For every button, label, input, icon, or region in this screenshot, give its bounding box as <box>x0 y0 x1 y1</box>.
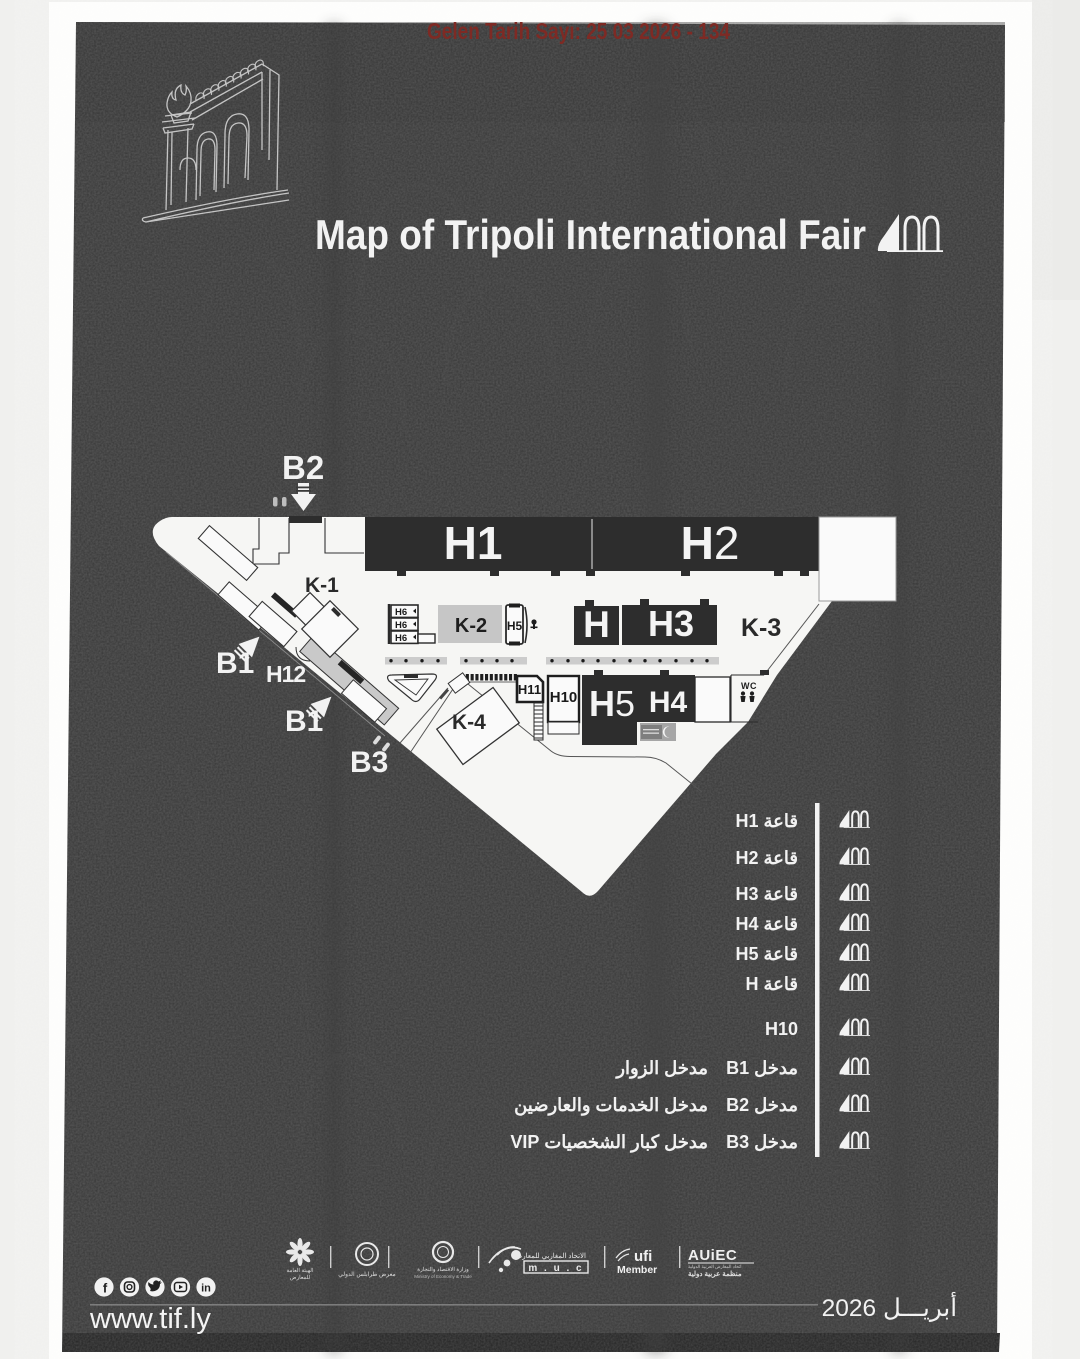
svg-text:ufi: ufi <box>634 1248 652 1265</box>
svg-text:K-3: K-3 <box>741 614 781 642</box>
svg-text:H10: H10 <box>765 1019 798 1039</box>
svg-text:Gelen Tarih Sayı: 25 03 2026 -: Gelen Tarih Sayı: 25 03 2026 - 134 <box>427 18 730 44</box>
svg-text:Map of Tripoli International F: Map of Tripoli International Fair <box>315 211 866 258</box>
svg-text:مدخل الزوار: مدخل الزوار <box>614 1058 708 1079</box>
svg-text:قاعة H: قاعة H <box>746 974 798 994</box>
svg-text:H: H <box>583 604 610 645</box>
svg-text:H10: H10 <box>550 689 578 706</box>
svg-text:B3: B3 <box>350 746 388 779</box>
svg-text:in: in <box>201 1283 211 1295</box>
svg-text:H2: H2 <box>681 517 740 569</box>
svg-text:H6: H6 <box>395 633 407 644</box>
svg-text:مدخل B1: مدخل B1 <box>726 1058 798 1078</box>
svg-text:H6: H6 <box>395 607 407 618</box>
svg-text:m . u . c: m . u . c <box>528 1263 583 1274</box>
svg-text:الهيئة العامة: الهيئة العامة <box>287 1267 314 1274</box>
svg-text:K-2: K-2 <box>455 615 487 637</box>
svg-text:قاعة H1: قاعة H1 <box>736 811 799 831</box>
svg-text:أبريـــل 2026: أبريـــل 2026 <box>822 1290 957 1323</box>
svg-text:قاعة H5: قاعة H5 <box>736 944 799 964</box>
svg-text:H3: H3 <box>648 603 694 644</box>
svg-text:K-4: K-4 <box>452 711 486 734</box>
svg-text:مدخل B2: مدخل B2 <box>726 1095 798 1115</box>
svg-text:H5: H5 <box>507 619 523 633</box>
svg-text:WC: WC <box>741 681 757 691</box>
svg-text:B2: B2 <box>282 449 324 486</box>
svg-text:الاتحاد المغاربي للمعارض: الاتحاد المغاربي للمعارض <box>514 1252 586 1260</box>
svg-text:قاعة H4: قاعة H4 <box>736 914 799 934</box>
svg-text:للمعارض: للمعارض <box>290 1274 311 1281</box>
svg-text:Member: Member <box>617 1264 657 1276</box>
svg-text:قاعة H2: قاعة H2 <box>736 848 799 868</box>
svg-text:Ministry of Economy & Trade: Ministry of Economy & Trade <box>414 1274 472 1279</box>
svg-text:معرض طرابلس الدولي: معرض طرابلس الدولي <box>338 1271 395 1278</box>
svg-text:AUiEC: AUiEC <box>688 1247 737 1264</box>
svg-text:قاعة H3: قاعة H3 <box>736 884 799 904</box>
svg-text:مدخل B3: مدخل B3 <box>726 1132 798 1152</box>
svg-text:منظمة عربية دولية: منظمة عربية دولية <box>688 1270 742 1278</box>
svg-text:H1: H1 <box>444 517 503 569</box>
svg-text:K-1: K-1 <box>305 574 339 597</box>
svg-text:وزارة الاقتصاد والتجارة: وزارة الاقتصاد والتجارة <box>417 1266 469 1273</box>
svg-text:H11: H11 <box>518 682 541 697</box>
svg-text:H5: H5 <box>589 683 635 724</box>
svg-text:H12: H12 <box>266 661 305 687</box>
svg-text:H6: H6 <box>395 620 407 631</box>
svg-text:f: f <box>103 1281 108 1296</box>
svg-text:مدخل الخدمات والعارضين: مدخل الخدمات والعارضين <box>514 1095 708 1116</box>
svg-text:مدخل كبار الشخصيات VIP: مدخل كبار الشخصيات VIP <box>510 1132 708 1153</box>
svg-text:www.tif.ly: www.tif.ly <box>89 1303 211 1335</box>
svg-text:H4: H4 <box>649 686 688 719</box>
